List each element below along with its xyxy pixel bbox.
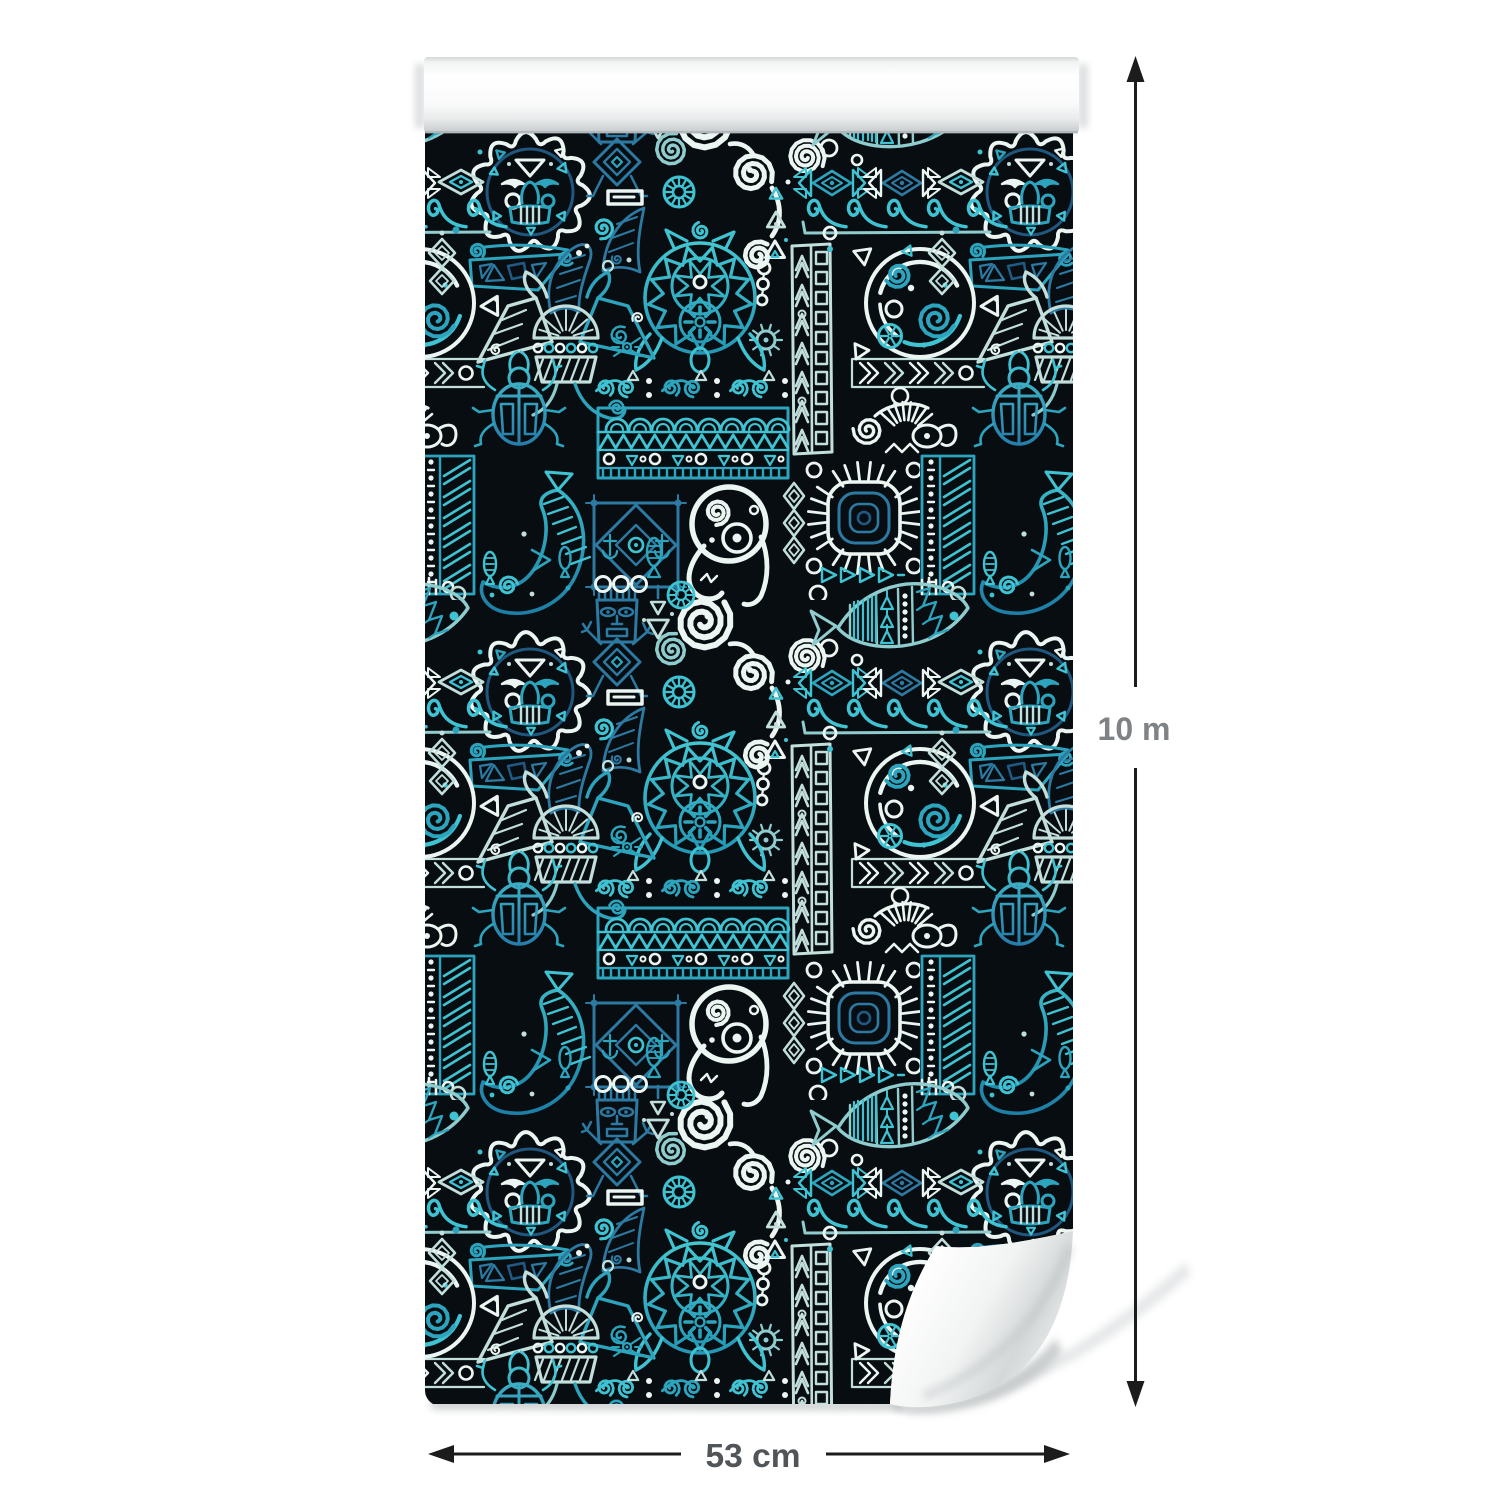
- svg-text:10 m: 10 m: [1098, 711, 1171, 747]
- svg-text:53 cm: 53 cm: [706, 1438, 801, 1475]
